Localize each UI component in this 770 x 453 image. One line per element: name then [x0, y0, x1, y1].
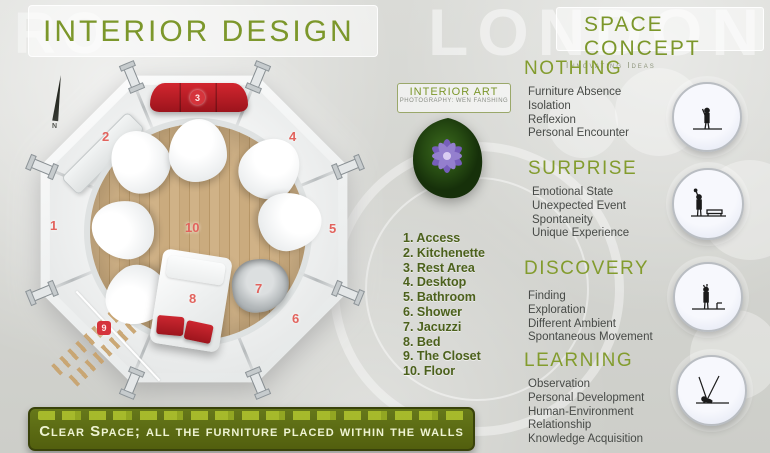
- person-with-bench-icon: [686, 182, 730, 226]
- discovery-icon-circle: [673, 262, 743, 332]
- legend-item: 9. The Closet: [403, 349, 485, 364]
- interior-art-credit: PHOTOGRAPHY: WEN FANSHING: [398, 98, 510, 104]
- legend-item: 10. Floor: [403, 364, 485, 379]
- banner-text: Clear Space; all the furniture placed wi…: [30, 409, 473, 440]
- section-nothing: NOTHING Furniture Absence Isolation Refl…: [524, 58, 676, 141]
- section-item: Unexpected Event: [532, 200, 680, 214]
- plan-number-4: 4: [289, 129, 296, 144]
- section-item: Different Ambient: [528, 318, 676, 332]
- plan-number-10: 10: [185, 220, 199, 235]
- nothing-icon-circle: [672, 82, 742, 152]
- legend-item: 2. Kitchenette: [403, 246, 485, 261]
- legend-item: 8. Bed: [403, 335, 485, 350]
- legend-item: 4. Desktop: [403, 275, 485, 290]
- person-exploring-icon: [687, 276, 729, 318]
- red-blanket: [156, 315, 185, 336]
- plan-number-5: 5: [329, 221, 336, 236]
- section-learning-title: LEARNING: [524, 350, 676, 372]
- section-item: Isolation: [528, 100, 676, 114]
- section-item: Furniture Absence: [528, 86, 676, 100]
- section-item: Spontaneous Movement: [528, 331, 676, 345]
- seat-petal: [169, 119, 227, 182]
- interior-art-title: INTERIOR ART: [398, 86, 510, 98]
- section-item: Knowledge Acquisition: [528, 433, 676, 447]
- surprise-icon-circle: [672, 168, 744, 240]
- title-box: INTERIOR DESIGN: [28, 5, 378, 57]
- legend-item: 5. Bathroom: [403, 290, 485, 305]
- person-alone-icon: [686, 96, 728, 138]
- red-blanket: [183, 320, 213, 344]
- learning-icon-circle: [676, 355, 747, 426]
- interior-art-box: INTERIOR ART PHOTOGRAPHY: WEN FANSHING: [397, 83, 511, 113]
- space-concept-box: SPACE CONCEPT Innovating Ideas: [556, 7, 764, 51]
- section-discovery: DISCOVERY Finding Exploration Different …: [524, 258, 676, 345]
- section-surprise: SURPRISE Emotional State Unexpected Even…: [528, 158, 680, 241]
- page-title: INTERIOR DESIGN: [29, 6, 377, 49]
- section-nothing-title: NOTHING: [524, 58, 676, 80]
- legend-list: 1. Access 2. Kitchenette 3. Rest Area 4.…: [403, 231, 485, 379]
- section-item: Finding: [528, 290, 676, 304]
- legend-item: 1. Access: [403, 231, 485, 246]
- purple-flower-photo: [407, 114, 489, 202]
- plan-number-6: 6: [292, 311, 299, 326]
- plan-number-2: 2: [102, 129, 109, 144]
- plan-number-8: 8: [189, 291, 196, 306]
- section-item: Personal Development: [528, 392, 676, 406]
- section-item: Spontaneity: [532, 214, 680, 228]
- person-observing-rays-icon: [690, 369, 734, 413]
- legend-item: 6. Shower: [403, 305, 485, 320]
- section-learning: LEARNING Observation Personal Developmen…: [524, 350, 676, 447]
- plan-number-3-badge: 3: [190, 90, 205, 105]
- section-discovery-title: DISCOVERY: [524, 258, 676, 280]
- space-concept-title: SPACE CONCEPT: [557, 8, 763, 61]
- plan-number-9-badge: 9: [97, 321, 111, 335]
- section-item: Emotional State: [532, 186, 680, 200]
- section-item: Unique Experience: [532, 227, 680, 241]
- section-item: Exploration: [528, 304, 676, 318]
- section-item: Personal Encounter: [528, 127, 676, 141]
- section-item: Observation: [528, 378, 676, 392]
- clear-space-banner: Clear Space; all the furniture placed wi…: [28, 407, 475, 451]
- legend-item: 3. Rest Area: [403, 261, 485, 276]
- floor-plan: N 3: [28, 63, 360, 395]
- section-item: Reflexion: [528, 114, 676, 128]
- legend-item: 7. Jacuzzi: [403, 320, 485, 335]
- plan-number-1: 1: [50, 218, 57, 233]
- section-item: Human-Environment Relationship: [528, 406, 668, 434]
- plan-legend: 1. Access 2. Kitchenette 3. Rest Area 4.…: [403, 231, 485, 379]
- plan-number-7: 7: [255, 281, 262, 296]
- section-surprise-title: SURPRISE: [528, 158, 680, 180]
- poster-canvas: RO LONDON INTERIOR DESIGN N: [0, 0, 770, 453]
